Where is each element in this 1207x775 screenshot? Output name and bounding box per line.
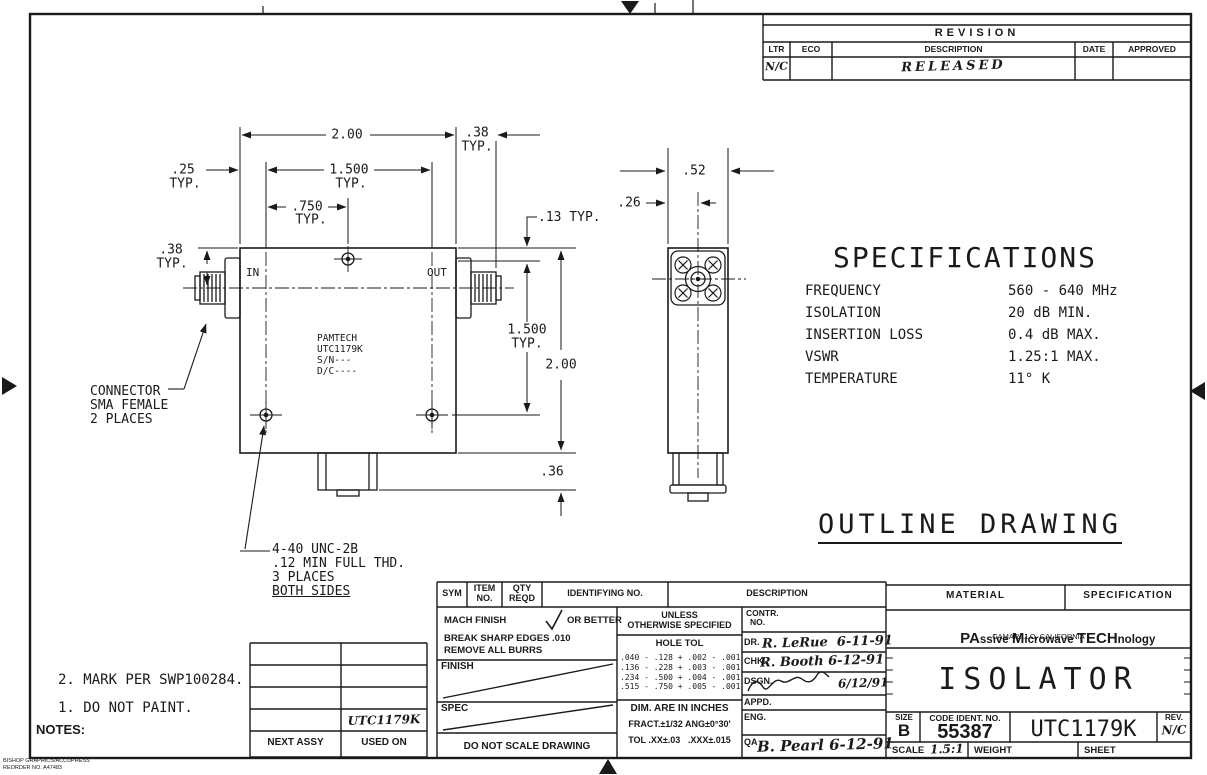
scale-value: 1.5:1	[930, 743, 964, 756]
hole-tol-row-2: .136 - .228 + .003 - .001	[620, 664, 740, 672]
appd-label: APPD.	[744, 698, 772, 707]
next-assy-header: NEXT ASSY	[250, 738, 341, 749]
leader-lines	[168, 324, 270, 551]
note-1: 1. DO NOT PAINT.	[58, 701, 193, 716]
spec-value-frequency: 560 - 640 MHz	[1008, 284, 1118, 299]
port-out-label: OUT	[427, 267, 447, 279]
nameplate-line-2: UTC1179K	[317, 345, 363, 355]
spec-value-isolation: 20 dB MIN.	[1008, 306, 1092, 321]
material-label: MATERIAL	[886, 591, 1065, 602]
dim-side-width: .52	[680, 164, 707, 179]
spec-label-isolation: ISOLATION	[805, 306, 881, 321]
dim-screw-inset: .25	[169, 163, 196, 178]
nameplate-line-1: PAMTECH	[317, 334, 357, 344]
dec-tol-text: TOL .XX±.03 .XXX±.015	[617, 736, 742, 745]
thread-callout-line-1: 4-40 UNC-2B	[272, 543, 358, 557]
spec-label-insertion-loss: INSERTION LOSS	[805, 328, 923, 343]
registration-arrow-right	[1190, 382, 1205, 400]
registration-arrow-left	[2, 377, 17, 395]
parts-col-identifying: IDENTIFYING NO.	[542, 589, 668, 598]
hole-tol-row-1: .040 - .128 + .002 - .001	[620, 654, 740, 662]
weight-label: WEIGHT	[974, 746, 1012, 756]
dim-screw-span-vert: 1.500	[505, 323, 548, 338]
scale-label: SCALE	[892, 746, 924, 756]
parts-col-description: DESCRIPTION	[668, 589, 886, 598]
connector-callout-line-1: CONNECTOR	[90, 385, 160, 399]
registration-arrow-bottom	[599, 759, 617, 774]
nameplate-line-3: S/N---	[317, 356, 351, 366]
revision-ltr-value: N/C	[763, 61, 790, 73]
dim-connector-length: .38	[463, 126, 490, 141]
size-value: B	[888, 722, 920, 740]
dsgn-value: 6/12/91	[838, 676, 889, 690]
dim-connector-center-offset-typ: TYP.	[154, 257, 189, 272]
dim-tab-height: .36	[538, 465, 565, 480]
dsgn-label: DSGN.	[744, 677, 773, 686]
drawing-sheet: REVISION LTR ECO DESCRIPTION DATE APPROV…	[0, 0, 1207, 775]
company-location: CAMARILLO, CALIFORNIA	[886, 633, 1191, 641]
hole-tol-row-4: .515 - .750 + .005 - .001	[620, 683, 740, 691]
thread-callout-line-4: BOTH SIDES	[272, 585, 350, 599]
dimension-lines	[198, 127, 774, 516]
screw-hole-top	[334, 246, 362, 272]
spec-value-insertion-loss: 0.4 dB MAX.	[1008, 328, 1101, 343]
dim-side-center-offset: .26	[615, 196, 642, 211]
connector-callout-line-2: SMA FEMALE	[90, 399, 168, 413]
surface-finish-icon	[546, 610, 562, 629]
revision-col-ltr: LTR	[763, 45, 790, 54]
revision-col-description: DESCRIPTION	[832, 45, 1075, 54]
specification-label: SPECIFICATION	[1065, 591, 1191, 602]
sheet-label: SHEET	[1084, 746, 1116, 756]
rev-value: N/C	[1157, 724, 1191, 737]
part-title: ISOLATOR	[886, 664, 1191, 696]
dim-connector-center-offset: .38	[157, 243, 184, 258]
do-not-scale-text: DO NOT SCALE DRAWING	[437, 742, 617, 753]
nameplate-line-4: D/C----	[317, 367, 357, 377]
parts-col-item-2: NO.	[467, 594, 502, 603]
print-vendor-line-2: REORDER NO. A47483	[3, 766, 62, 772]
used-on-value: UTC1179K	[341, 713, 427, 728]
unless-line-2: OTHERWISE SPECIFIED	[617, 621, 742, 630]
parts-col-sym: SYM	[437, 589, 467, 598]
spec-value-temperature: 11° K	[1008, 372, 1050, 387]
connector-callout-line-3: 2 PLACES	[90, 413, 153, 427]
rev-label: REV.	[1157, 714, 1191, 722]
eng-label: ENG.	[744, 713, 766, 722]
code-ident-value: 55387	[920, 722, 1010, 743]
note-2: 2. MARK PER SWP100284.	[58, 673, 243, 688]
dim-connector-length-typ: TYP.	[459, 140, 494, 155]
spec-value-vswr: 1.25:1 MAX.	[1008, 350, 1101, 365]
parts-col-qty-2: REQD	[502, 594, 542, 603]
mach-finish-suffix: OR BETTER	[567, 616, 622, 626]
thread-callout-line-3: 3 PLACES	[272, 571, 335, 585]
spec-label-temperature: TEMPERATURE	[805, 372, 898, 387]
dim-top-width: 2.00	[329, 128, 364, 143]
drawing-number: UTC1179K	[1010, 718, 1157, 741]
fract-tol-text: FRACT.±1/32 ANG±0°30'	[617, 720, 742, 729]
revision-col-approved: APPROVED	[1113, 45, 1191, 54]
used-on-header: USED ON	[341, 738, 427, 749]
spec-label: SPEC	[441, 704, 468, 715]
registration-arrow-top	[621, 1, 639, 14]
qa-value: B. Pearl 6-12-91	[757, 736, 894, 755]
revision-title: REVISION	[763, 28, 1191, 40]
port-in-label: IN	[246, 267, 259, 279]
mach-finish-text: MACH FINISH	[444, 616, 506, 626]
break-edges-text: BREAK SHARP EDGES .010	[444, 634, 571, 644]
print-vendor-line-1: BISHOP GRAPHICS/ACCUPRESS	[3, 759, 90, 765]
chk-value: R. Booth 6-12-91	[760, 653, 885, 670]
dim-screw-span-horiz: 1.500	[327, 163, 370, 178]
dim-body-height: 2.00	[543, 358, 578, 373]
dr-label: DR.	[744, 638, 760, 647]
revision-col-eco: ECO	[790, 45, 832, 54]
spec-label-vswr: VSWR	[805, 350, 839, 365]
side-centerlines	[652, 192, 746, 478]
finish-label: FINISH	[441, 662, 474, 673]
qa-label: QA	[744, 738, 758, 747]
specifications-title: SPECIFICATIONS	[833, 243, 1097, 272]
front-bottom-tab	[318, 453, 377, 496]
revision-col-date: DATE	[1075, 45, 1113, 54]
remove-burrs-text: REMOVE ALL BURRS	[444, 646, 542, 656]
thread-callout-line-2: .12 MIN FULL THD.	[272, 557, 405, 571]
dim-units-text: DIM. ARE IN INCHES	[617, 704, 742, 715]
contr-label-2: NO.	[750, 618, 765, 627]
dim-screw-half-span-typ: TYP.	[293, 213, 328, 228]
dr-value: R. LeRue 6-11-91	[762, 634, 893, 651]
dim-screw-span-vert-typ: TYP.	[509, 337, 544, 352]
hole-tol-label: HOLE TOL	[617, 639, 742, 649]
dim-screw-inset-typ: TYP.	[167, 177, 202, 192]
notes-label: NOTES:	[36, 723, 85, 737]
spec-label-frequency: FREQUENCY	[805, 284, 881, 299]
drawing-title: OUTLINE DRAWING	[818, 511, 1122, 544]
dim-hole-edge-offset: .13 TYP.	[538, 210, 601, 225]
side-view	[652, 192, 746, 501]
spec-diagonal	[443, 705, 613, 730]
dim-screw-span-horiz-typ: TYP.	[333, 177, 368, 192]
